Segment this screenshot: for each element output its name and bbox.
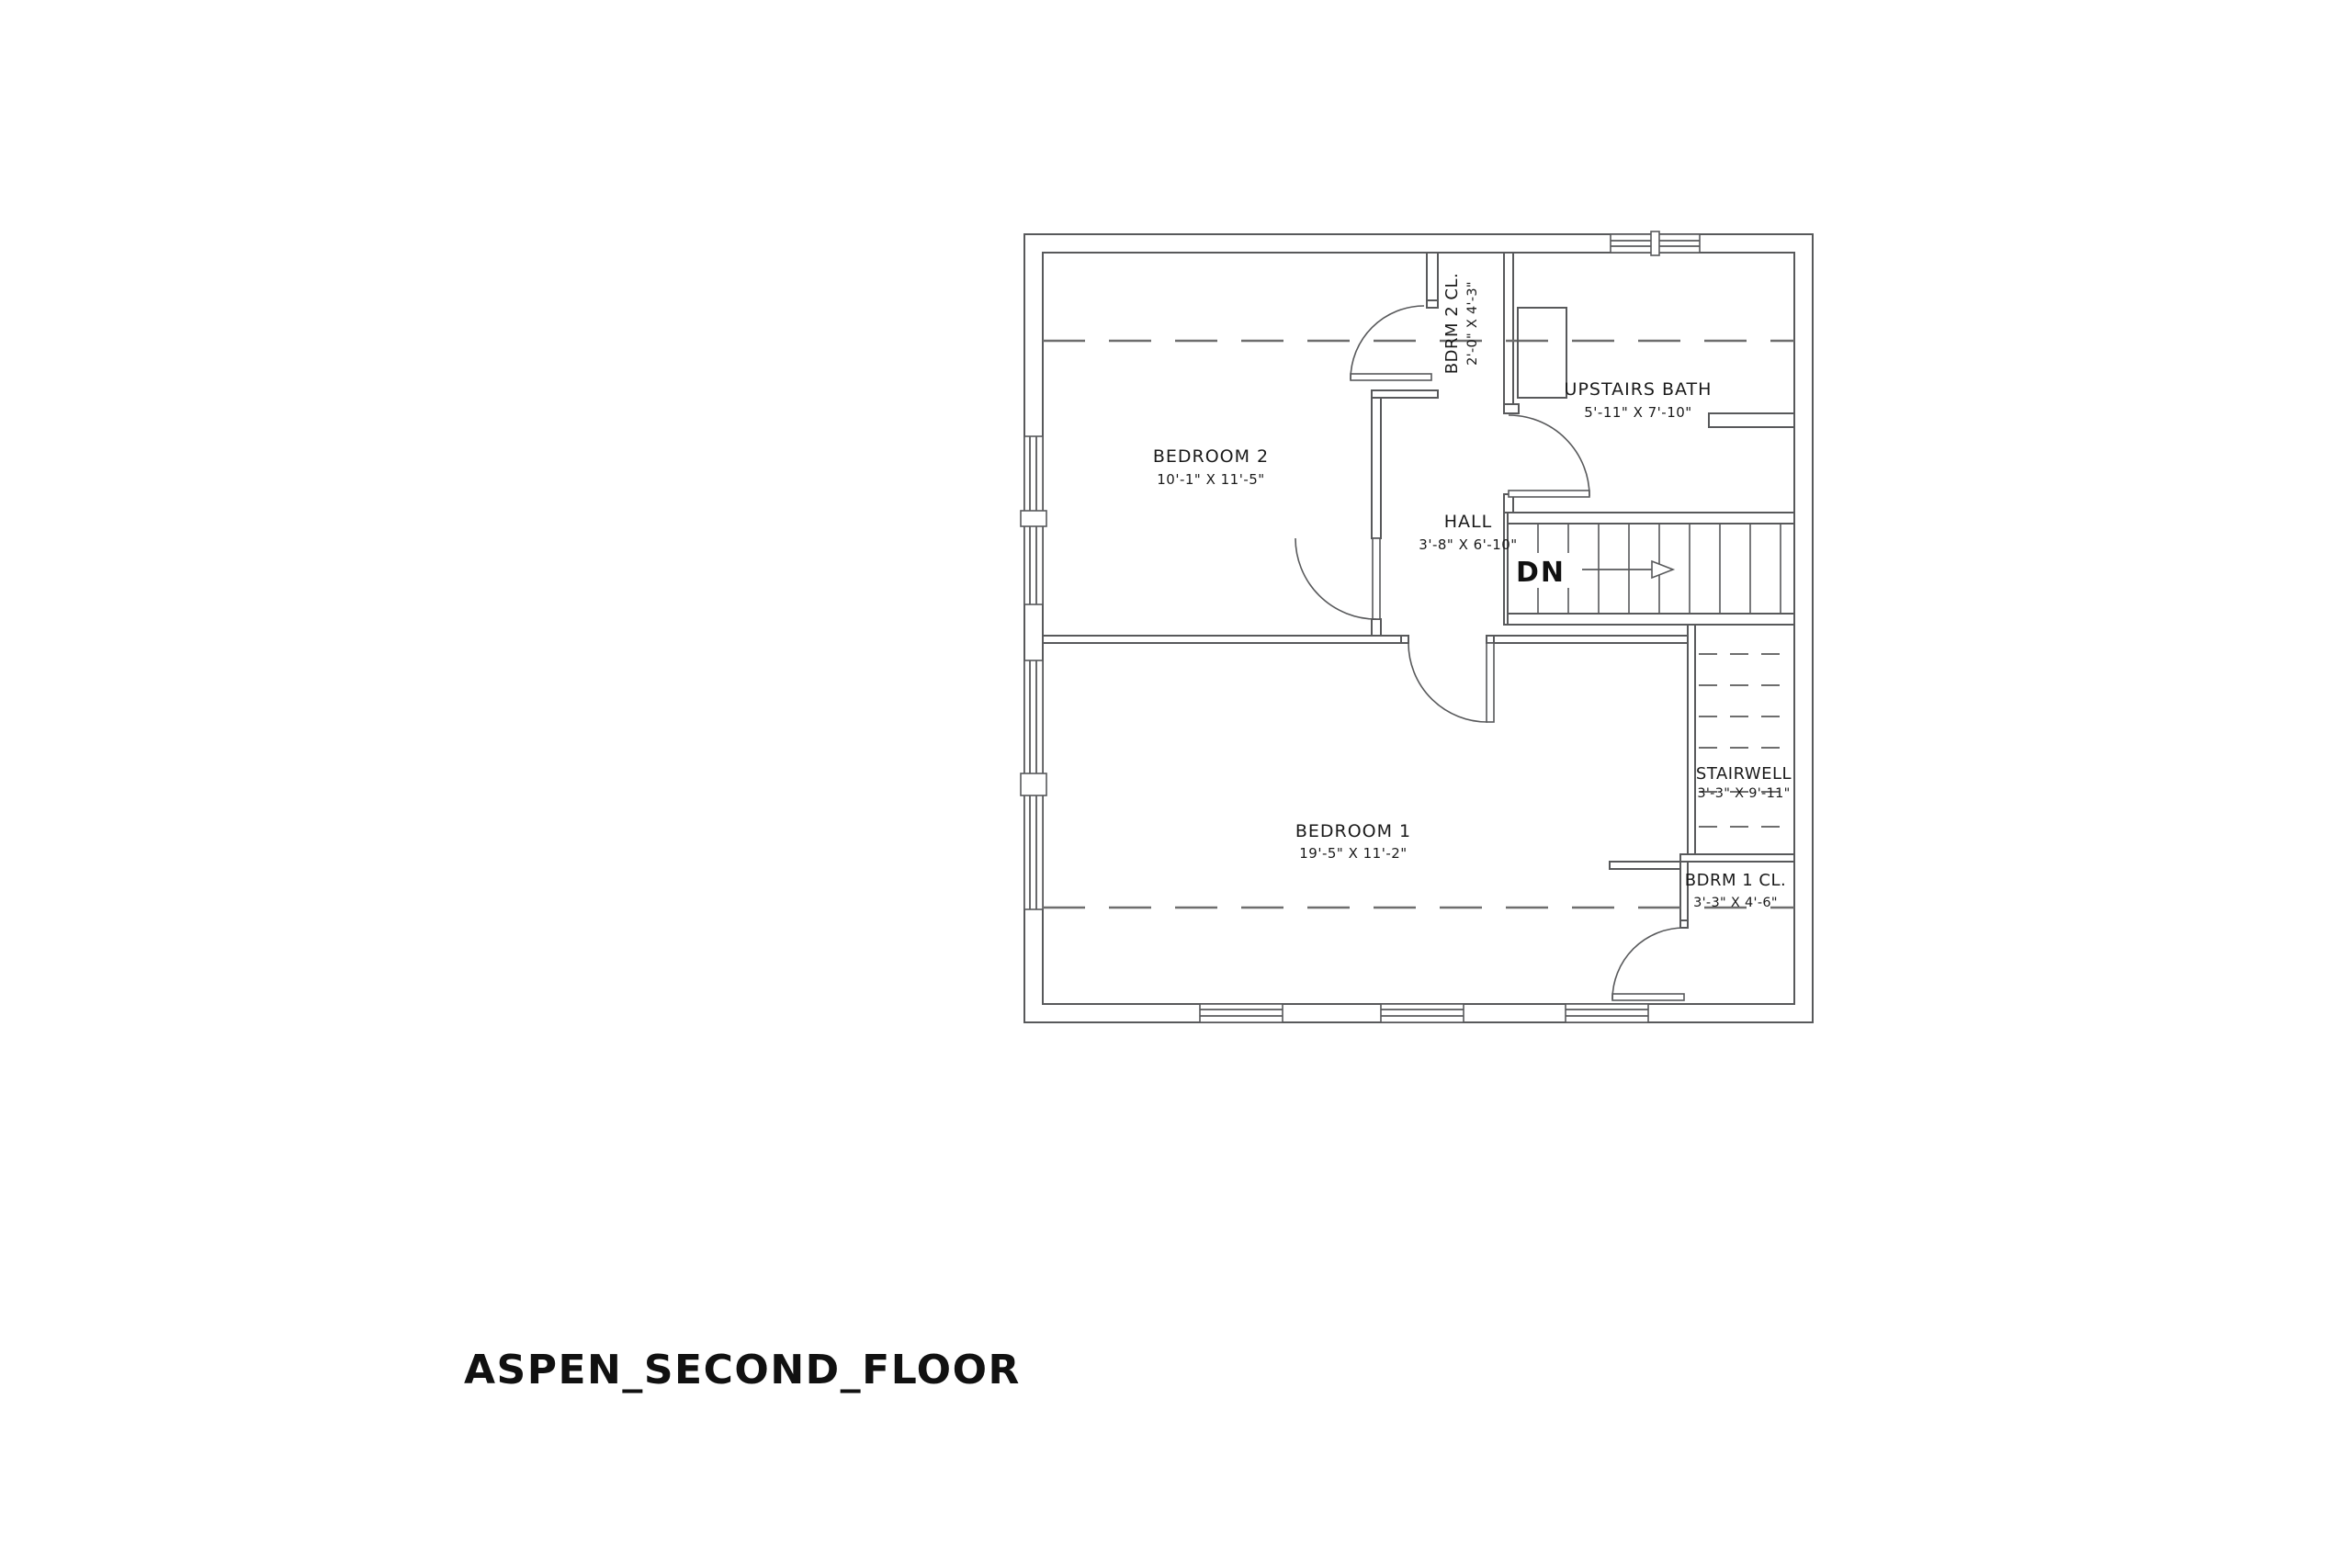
- jamb-bdrm2-closet-door: [1427, 300, 1438, 308]
- drawing-title: ASPEN_SECOND_FLOOR: [464, 1347, 1021, 1393]
- room-dims-upstairs-bath: 5'-11" X 7'-10": [1584, 404, 1691, 421]
- jamb-bedroom1-door-right: [1487, 636, 1494, 643]
- window-bottom-1: [1200, 1004, 1283, 1022]
- room-label-bdrm1-closet: BDRM 1 CL.: [1685, 871, 1786, 890]
- room-dims-bedroom2: 10'-1" X 11'-5": [1157, 471, 1264, 488]
- room-label-upstairs-bath: UPSTAIRS BATH: [1565, 379, 1713, 400]
- wall-bedroom2-east: [1372, 398, 1381, 538]
- floor-plan-sheet: DN: [0, 0, 2352, 1568]
- wall-closet1-stub: [1610, 862, 1688, 869]
- window-bottom-2: [1381, 1004, 1464, 1022]
- window-left-bedroom2: [1021, 436, 1046, 604]
- wall-bedroom1-north-left: [1043, 636, 1401, 643]
- room-label-bdrm2-closet: BDRM 2 CL.: [1442, 273, 1462, 374]
- wall-stairwell-west: [1688, 623, 1695, 862]
- room-dims-stairwell: 3'-3" X 9'-11": [1697, 786, 1790, 801]
- stair-west-edge: [1504, 513, 1508, 625]
- room-label-hall: HALL: [1444, 512, 1492, 532]
- stair-direction-label: DN: [1516, 557, 1566, 589]
- window-bottom-3: [1566, 1004, 1648, 1022]
- wall-bath-jog: [1504, 404, 1519, 413]
- room-label-bedroom2: BEDROOM 2: [1153, 446, 1269, 467]
- wall-bdrm2-closet-west: [1427, 253, 1438, 306]
- wall-bedroom1-north-right: [1494, 636, 1695, 643]
- room-label-stairwell: STAIRWELL: [1696, 764, 1792, 784]
- wall-bdrm2-closet-east: [1504, 253, 1513, 404]
- jamb-bedroom1-door-left: [1401, 636, 1408, 643]
- window-left-bedroom1: [1021, 660, 1046, 909]
- jamb-bdrm1-closet-door: [1680, 920, 1688, 928]
- room-dims-bdrm1-closet: 3'-3" X 4'-6": [1693, 896, 1778, 910]
- wall-bath-southeast-stub: [1709, 413, 1794, 427]
- room-dims-bdrm2-closet: 2'-0" X 4'-3": [1465, 281, 1480, 366]
- wall-stairwell-south: [1680, 854, 1794, 862]
- room-dims-bedroom1: 19'-5" X 11'-2": [1299, 845, 1407, 862]
- window-top-bath: [1611, 231, 1700, 255]
- floor-plan-drawing: DN: [0, 0, 2352, 1568]
- room-label-bedroom1: BEDROOM 1: [1295, 821, 1411, 841]
- wall-bedroom2-northeast: [1372, 390, 1438, 398]
- stair-top-stringer: [1508, 513, 1794, 524]
- stair-bottom-stringer: [1508, 614, 1794, 625]
- room-dims-hall: 3'-8" X 6'-10": [1419, 536, 1517, 553]
